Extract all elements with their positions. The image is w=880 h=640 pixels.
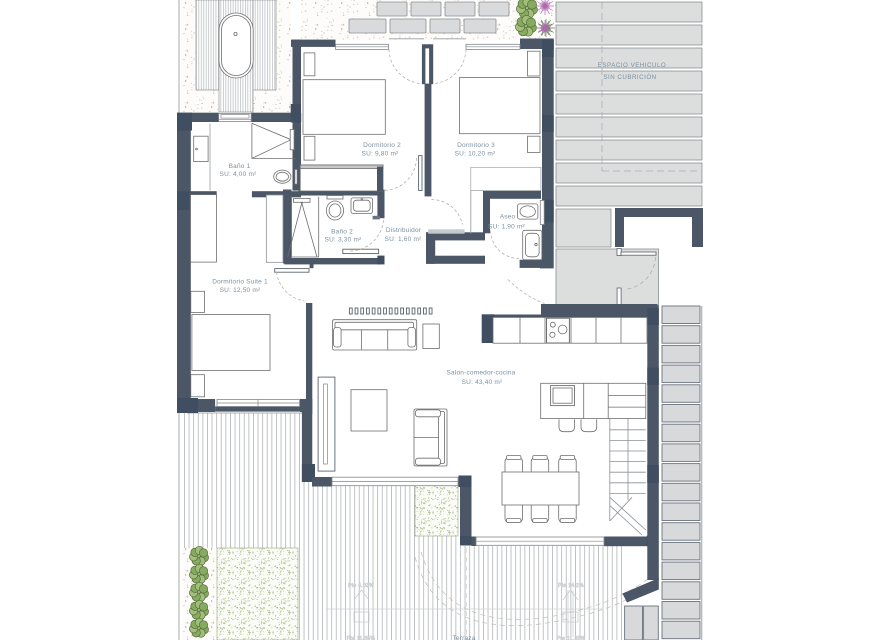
svg-text:Baño 2: Baño 2 [331, 229, 353, 236]
svg-text:Aseo: Aseo [500, 214, 516, 221]
svg-text:Baño 1: Baño 1 [229, 163, 251, 170]
svg-text:Pte 11.35%: Pte 11.35% [347, 636, 376, 640]
svg-text:SU: 4,00 m²: SU: 4,00 m² [220, 171, 258, 178]
svg-text:Terraza: Terraza [452, 635, 475, 640]
svg-text:SU: 1,90 m²: SU: 1,90 m² [488, 224, 526, 231]
svg-text:ESPACIO VEHICULO: ESPACIO VEHICULO [598, 62, 666, 69]
svg-text:Salon-comedor-cocina: Salon-comedor-cocina [446, 370, 515, 377]
svg-text:SU: 9,80 m²: SU: 9,80 m² [362, 151, 400, 158]
svg-text:SIN CUBRICIÓN: SIN CUBRICIÓN [603, 74, 656, 81]
svg-text:Distribuidor: Distribuidor [386, 227, 422, 234]
svg-text:SU: 3,30 m²: SU: 3,30 m² [325, 237, 363, 244]
svg-text:Pte 4.03%: Pte 4.03% [348, 583, 374, 589]
svg-text:SU: 12,50 m²: SU: 12,50 m² [220, 287, 261, 294]
svg-text:Pte 14.2%: Pte 14.2% [558, 583, 584, 589]
svg-text:Dormitorio 2: Dormitorio 2 [363, 142, 401, 149]
svg-text:SU: 1,60 m²: SU: 1,60 m² [385, 236, 423, 243]
svg-text:SU: 10,20 m²: SU: 10,20 m² [455, 151, 496, 158]
svg-text:Dormitorio 3: Dormitorio 3 [457, 142, 495, 149]
svg-text:Dormitorio Suite 1: Dormitorio Suite 1 [212, 279, 268, 286]
svg-text:SU: 43,40 m²: SU: 43,40 m² [462, 379, 503, 386]
svg-text:Pte 11.35%: Pte 11.35% [557, 636, 586, 640]
